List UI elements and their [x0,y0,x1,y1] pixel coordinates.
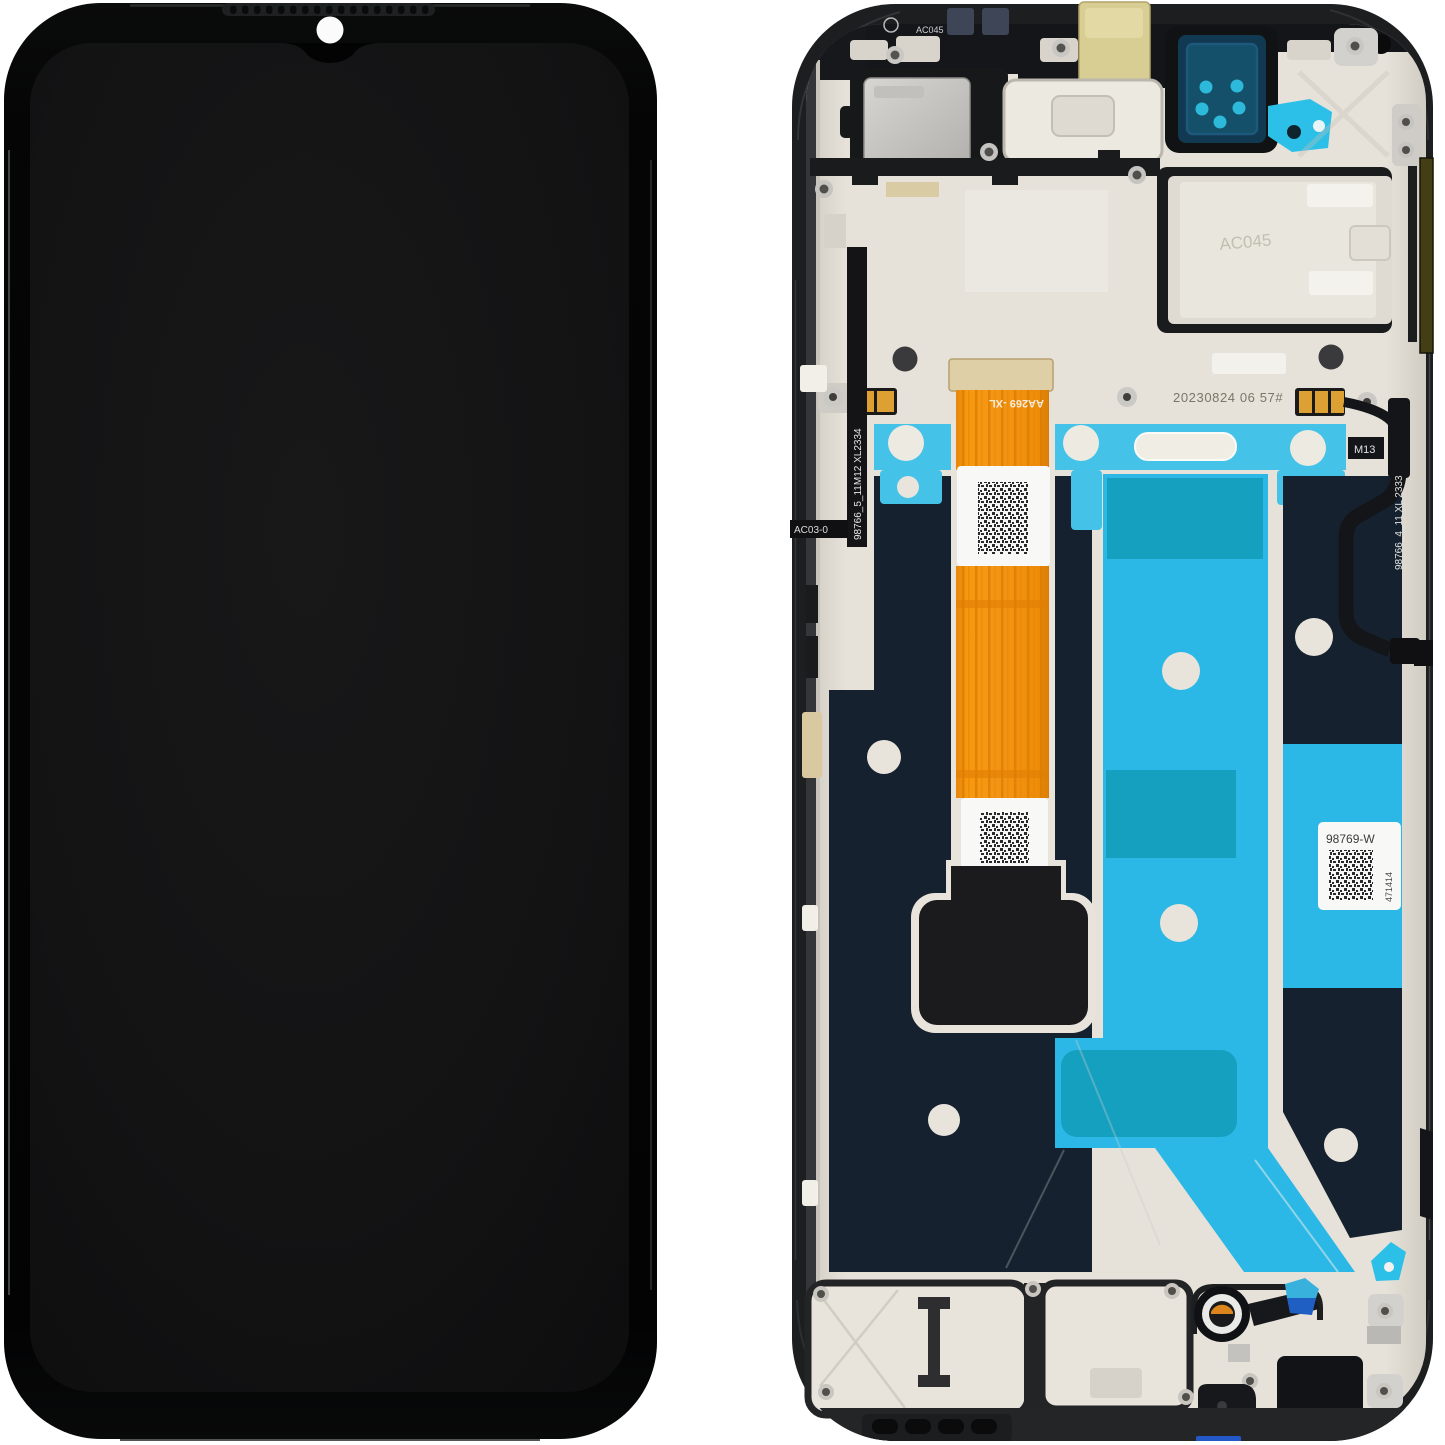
svg-text:20230824 06 57#: 20230824 06 57# [1173,390,1283,405]
svg-text:98769-W: 98769-W [1326,832,1375,846]
svg-text:471414: 471414 [1384,872,1394,902]
svg-text:M13: M13 [1354,444,1375,456]
svg-text:AC045: AC045 [916,25,944,35]
svg-text:98766_4_11 XL 2333: 98766_4_11 XL 2333 [1394,475,1405,570]
svg-text:AC03-0: AC03-0 [794,525,828,536]
svg-text:98766_5_11M12 XL2334: 98766_5_11M12 XL2334 [853,428,864,540]
svg-text:AA269 -XL: AA269 -XL [989,397,1044,409]
